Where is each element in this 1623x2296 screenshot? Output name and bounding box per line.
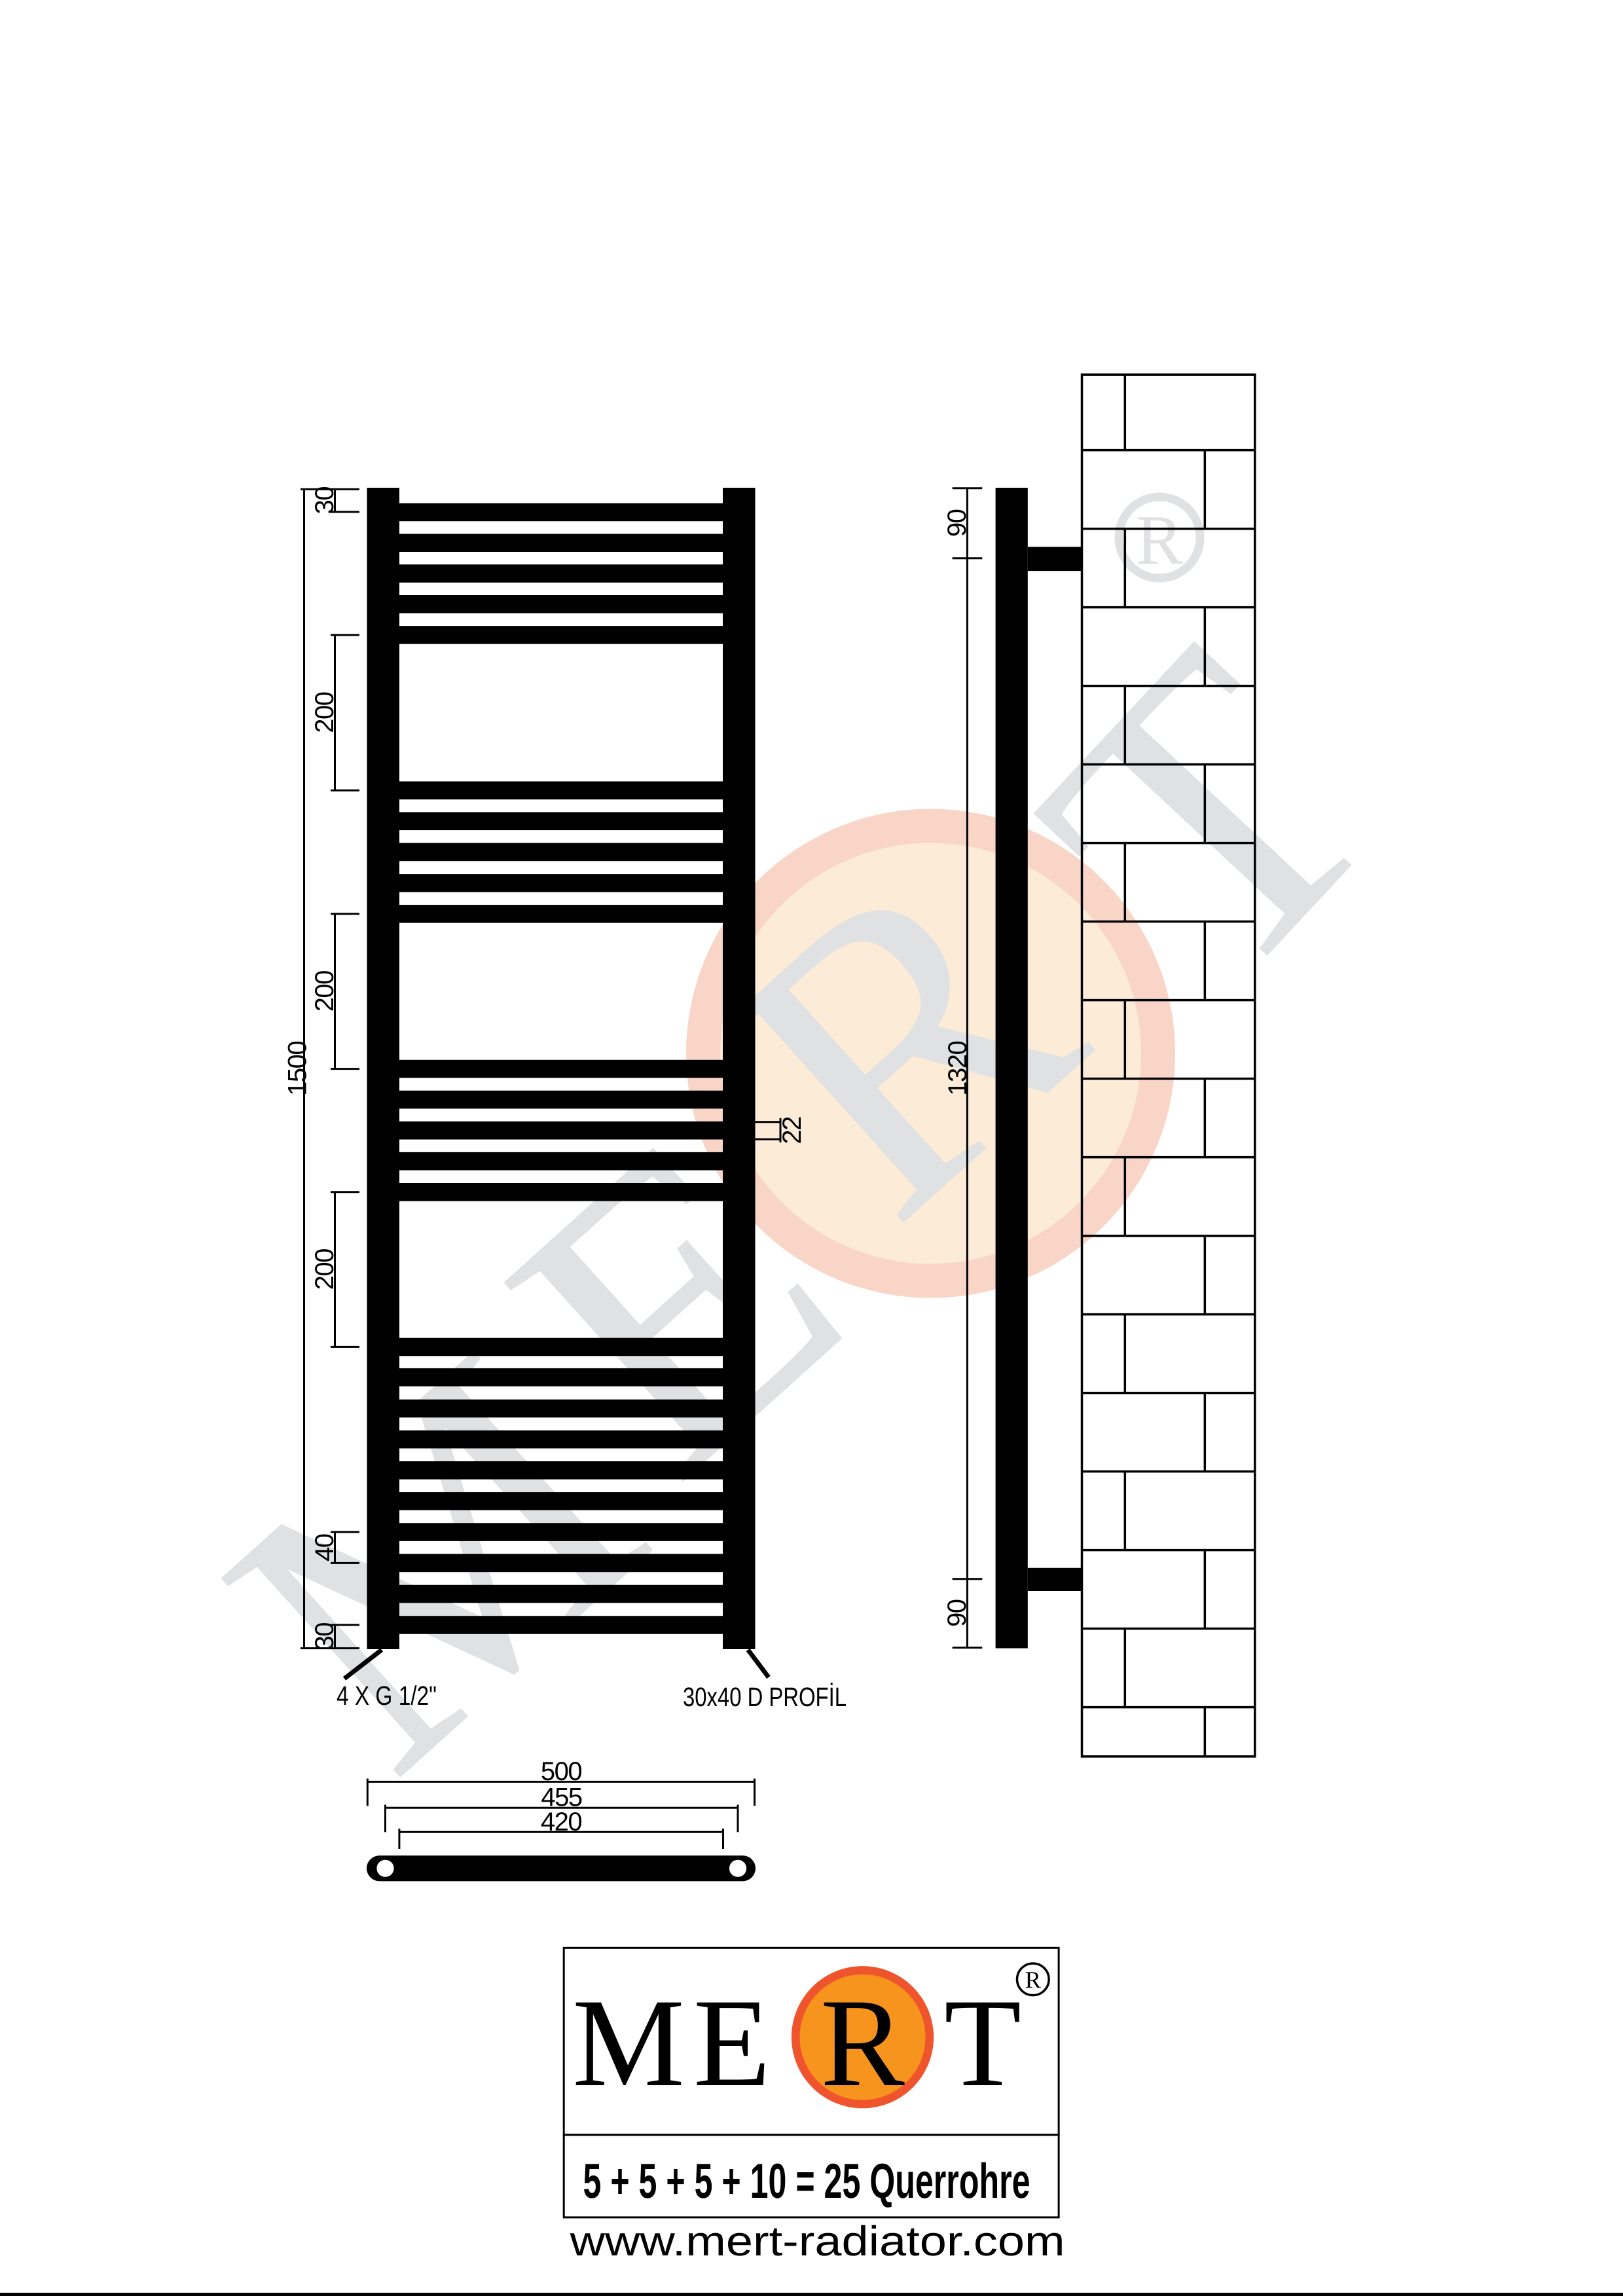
svg-text:200: 200 <box>310 971 339 1011</box>
svg-text:90: 90 <box>943 1599 972 1627</box>
svg-text:90: 90 <box>943 509 972 537</box>
svg-text:R: R <box>1136 501 1183 579</box>
svg-text:R: R <box>820 1973 905 2113</box>
svg-text:22: 22 <box>778 1117 807 1144</box>
svg-text:420: 420 <box>541 1808 581 1836</box>
svg-text:4 X G 1/2": 4 X G 1/2" <box>337 1681 437 1711</box>
svg-text:R: R <box>1025 1967 1041 1993</box>
svg-text:200: 200 <box>310 692 339 733</box>
svg-text:200: 200 <box>310 1249 339 1290</box>
svg-text:5 + 5 + 5 + 10 = 25 Querrohre: 5 + 5 + 5 + 10 = 25 Querrohre <box>583 2153 1030 2208</box>
svg-text:500: 500 <box>541 1757 581 1786</box>
svg-text:M: M <box>572 1973 685 2113</box>
svg-text:T: T <box>944 1973 1021 2113</box>
svg-text:30: 30 <box>310 1623 339 1650</box>
svg-text:www.mert-radiator.com: www.mert-radiator.com <box>569 2217 1065 2265</box>
svg-text:E: E <box>693 1973 771 2113</box>
svg-text:1500: 1500 <box>283 1042 312 1096</box>
svg-text:30x40 D PROFİL: 30x40 D PROFİL <box>683 1682 847 1712</box>
svg-text:30: 30 <box>310 487 339 515</box>
svg-text:1320: 1320 <box>943 1041 972 1095</box>
svg-text:40: 40 <box>310 1534 339 1561</box>
